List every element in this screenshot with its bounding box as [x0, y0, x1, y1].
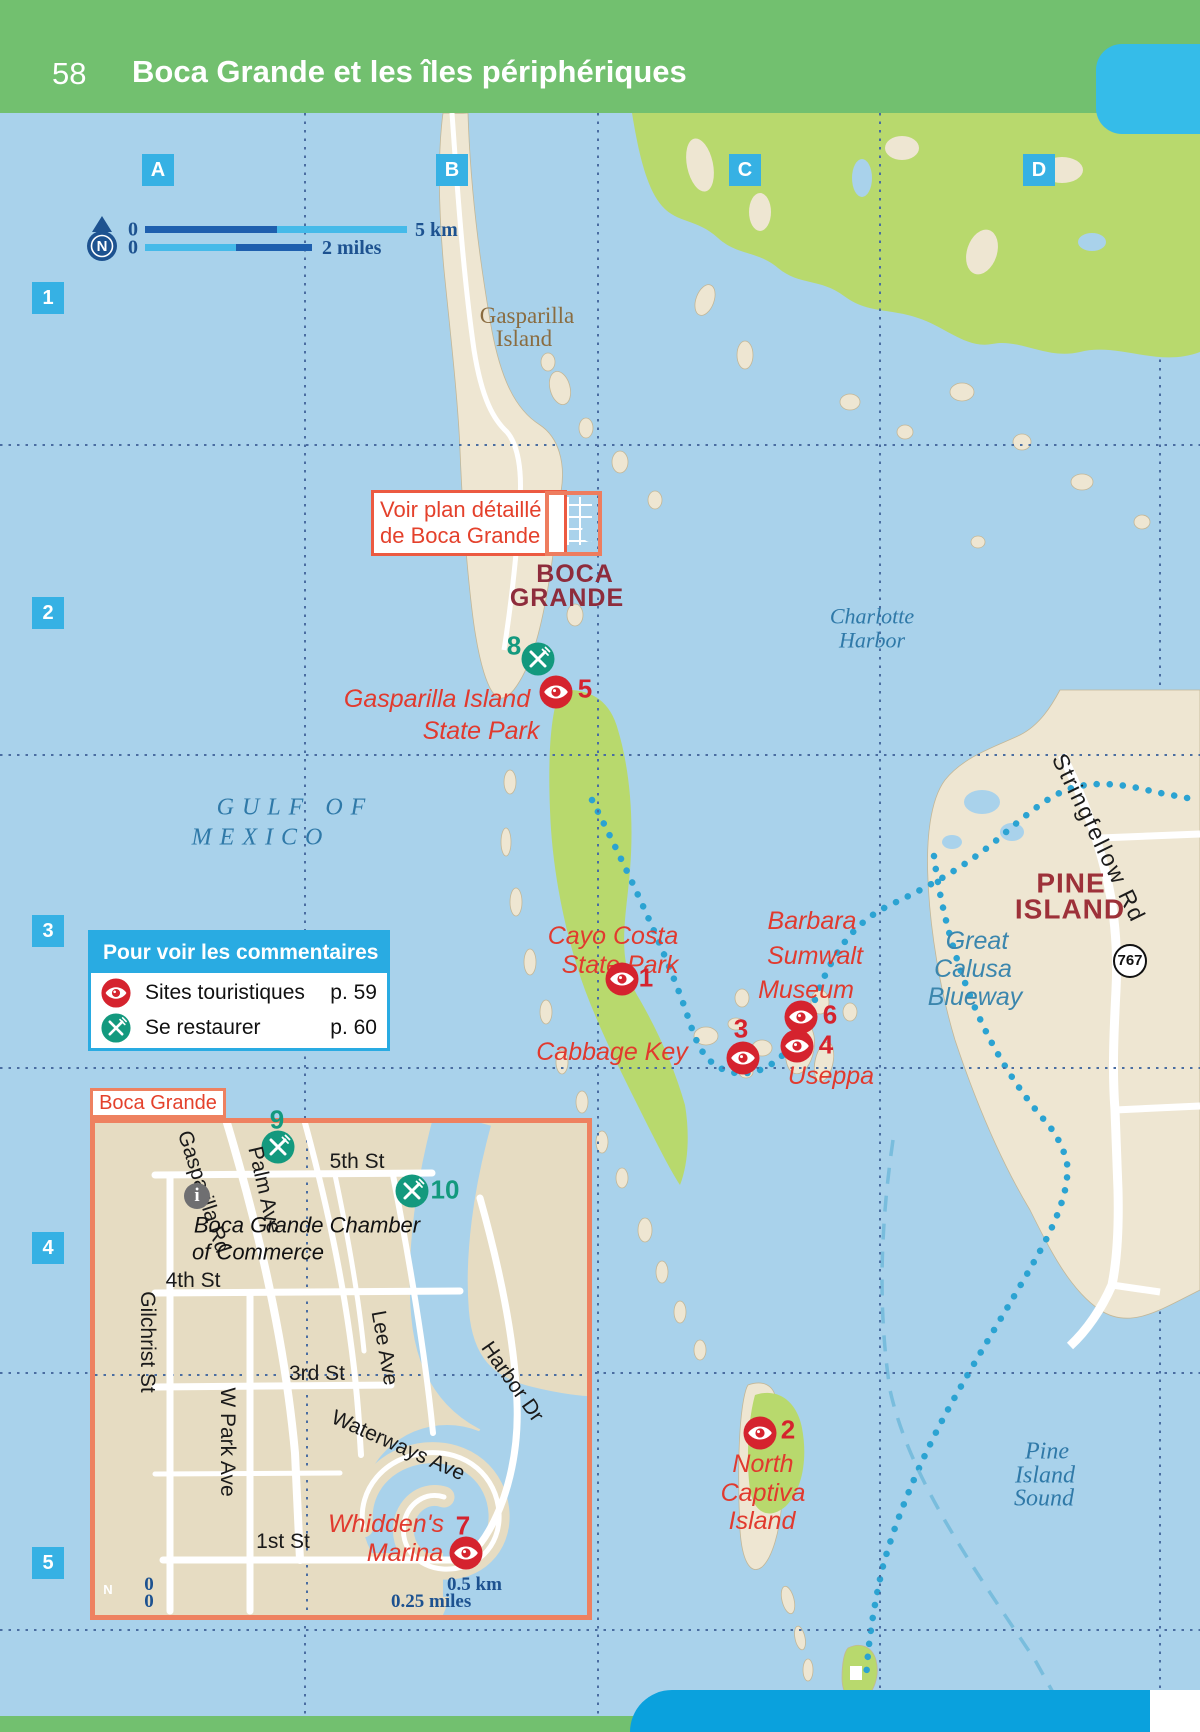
islet — [950, 383, 974, 401]
sight-marker-7 — [449, 1536, 483, 1570]
marker-number-5: 5 — [578, 675, 592, 702]
marker-number-3: 3 — [734, 1015, 748, 1042]
north-captiva-label-1: North — [732, 1451, 793, 1477]
legend-sights-label: Sites touristiques — [145, 981, 305, 1005]
map-page: 58 Boca Grande et les îles périphériques… — [0, 0, 1200, 1732]
grid-col-c: C — [729, 154, 761, 186]
grid-col-b: B — [436, 154, 468, 186]
islet — [612, 451, 628, 473]
restaurant-icon — [101, 1013, 131, 1043]
page-header: 58 Boca Grande et les îles périphériques — [0, 0, 1200, 113]
gulf-of-mexico-label-2: MEXICO — [192, 825, 331, 850]
north-captiva-label-2: Captiva — [721, 1480, 806, 1506]
scale-top-mi-label: 2 miles — [322, 237, 381, 260]
islet — [971, 536, 985, 548]
sight-marker-5 — [539, 675, 573, 709]
pine-island-label-2: ISLAND — [1015, 894, 1125, 923]
grid-row-4: 4 — [32, 1232, 64, 1264]
page-number: 58 — [52, 56, 86, 92]
ferry-route-dashed — [882, 1140, 1060, 1705]
scale-inset-mi-zero: 0 — [144, 1592, 154, 1612]
lagoon — [852, 159, 872, 197]
route-767-shield: 767 — [1113, 944, 1147, 978]
grid-row-3: 3 — [32, 915, 64, 947]
marker-number-8: 8 — [507, 632, 521, 659]
grid-col-d: D — [1023, 154, 1055, 186]
legend-box: Pour voir les commentaires Sites tourist… — [88, 930, 390, 1051]
sight-marker-1 — [605, 962, 639, 996]
eye-icon — [101, 978, 131, 1008]
detail-area-rectangle — [545, 491, 602, 556]
islet — [737, 341, 753, 369]
lagoon — [1078, 233, 1106, 251]
street-5th-st: 5th St — [330, 1151, 385, 1173]
gasparilla-island-label-1: Gasparilla — [480, 304, 575, 328]
detail-map-callout: Voir plan détaillé de Boca Grande — [371, 490, 567, 556]
islet — [749, 193, 771, 231]
cayo-costa-label-1: Cayo Costa — [548, 923, 679, 949]
pine-island-sound-label-1: Pine — [1025, 1439, 1069, 1464]
restaurant-marker-8 — [521, 642, 555, 676]
islet — [885, 136, 919, 160]
sight-marker-6 — [784, 1000, 818, 1034]
whiddens-marina-label-1: Whidden's — [328, 1511, 444, 1537]
page-edge-tab-top — [1096, 44, 1200, 134]
chamber-of-commerce-label-1: Boca Grande Chamber — [194, 1213, 420, 1236]
pine-lagoon — [942, 835, 962, 849]
street-3rd-st: 3rd St — [289, 1363, 345, 1385]
boca-grande-label-2: GRANDE — [510, 585, 624, 611]
pine-island-sound-label-3: Sound — [1014, 1486, 1074, 1511]
marker-number-4: 4 — [819, 1031, 833, 1058]
inset-compass-n-letter: N — [103, 1583, 112, 1597]
islet — [579, 418, 593, 438]
marker-number-6: 6 — [823, 1001, 837, 1028]
islet — [1134, 515, 1150, 529]
marker-number-2: 2 — [781, 1416, 795, 1443]
useppa-label: Useppa — [788, 1063, 874, 1089]
legend-row-food: Se restaurer p. 60 — [91, 1013, 387, 1048]
scale-inset-mi-label: 0.25 miles — [391, 1591, 471, 1613]
islet — [546, 369, 574, 407]
pine-lagoon — [964, 790, 1000, 814]
sight-marker-3 — [726, 1041, 760, 1075]
sumwalt-museum-label-2: Sumwalt — [767, 943, 863, 969]
compass-n-letter: N — [97, 239, 108, 255]
bottom-islet-building — [850, 1666, 862, 1680]
scale-top-km-label: 5 km — [415, 219, 458, 242]
street-1st-st: 1st St — [256, 1531, 310, 1553]
marker-number-10: 10 — [431, 1176, 460, 1203]
islet — [648, 491, 662, 509]
page-title: Boca Grande et les îles périphériques — [132, 54, 687, 90]
gulf-of-mexico-label-1: GULF OF — [217, 795, 374, 820]
street-w-park-ave: W Park Ave — [216, 1387, 238, 1496]
street-4th-st: 4th St — [166, 1270, 221, 1292]
islet — [1071, 474, 1093, 490]
islet — [691, 282, 719, 318]
legend-title: Pour voir les commentaires — [91, 933, 387, 973]
info-icon: i — [184, 1183, 210, 1209]
whiddens-marina-label-2: Marina — [367, 1540, 443, 1566]
chamber-of-commerce-label-2: of Commerce — [192, 1240, 324, 1263]
marker-number-1: 1 — [639, 964, 653, 991]
legend-food-page: p. 60 — [330, 1016, 377, 1040]
islet — [840, 394, 860, 410]
page-edge-tab-bottom — [630, 1690, 1150, 1732]
blueway-label-3: Blueway — [928, 984, 1023, 1010]
islet — [897, 425, 913, 439]
charlotte-harbor-label-1: Charlotte — [830, 604, 914, 627]
marker-number-7: 7 — [456, 1512, 470, 1539]
legend-row-sights: Sites touristiques p. 59 — [91, 973, 387, 1013]
legend-food-label: Se restaurer — [145, 1016, 261, 1040]
gasparilla-island-label-2: Island — [496, 327, 552, 351]
restaurant-marker-10 — [395, 1174, 429, 1208]
legend-sights-page: p. 59 — [330, 981, 377, 1005]
charlotte-harbor-label-2: Harbor — [839, 628, 905, 651]
scale-top-mi-zero: 0 — [128, 238, 138, 259]
sight-marker-2 — [743, 1416, 777, 1450]
page-corner — [1150, 1690, 1200, 1732]
marker-number-9: 9 — [270, 1106, 284, 1133]
callout-line-1: Voir plan détaillé — [380, 497, 558, 523]
gasparilla-state-park-label-2: State Park — [423, 718, 540, 744]
grid-row-1: 1 — [32, 282, 64, 314]
sumwalt-museum-label-1: Barbara — [768, 908, 857, 934]
islet — [1013, 434, 1031, 450]
islet — [541, 353, 555, 371]
blueway-label-1: Great — [946, 928, 1009, 954]
gasparilla-state-park-label-1: Gasparilla Island — [344, 686, 530, 712]
north-captiva-label-3: Island — [729, 1508, 796, 1534]
grid-row-5: 5 — [32, 1547, 64, 1579]
cabbage-key-label: Cabbage Key — [536, 1039, 688, 1065]
inset-title-tab: Boca Grande — [90, 1088, 226, 1118]
street-gilchrist-st: Gilchrist St — [136, 1291, 158, 1393]
callout-line-2: de Boca Grande — [380, 523, 558, 549]
blueway-label-2: Calusa — [934, 956, 1012, 982]
grid-col-a: A — [142, 154, 174, 186]
grid-row-2: 2 — [32, 597, 64, 629]
sight-marker-4 — [780, 1029, 814, 1063]
